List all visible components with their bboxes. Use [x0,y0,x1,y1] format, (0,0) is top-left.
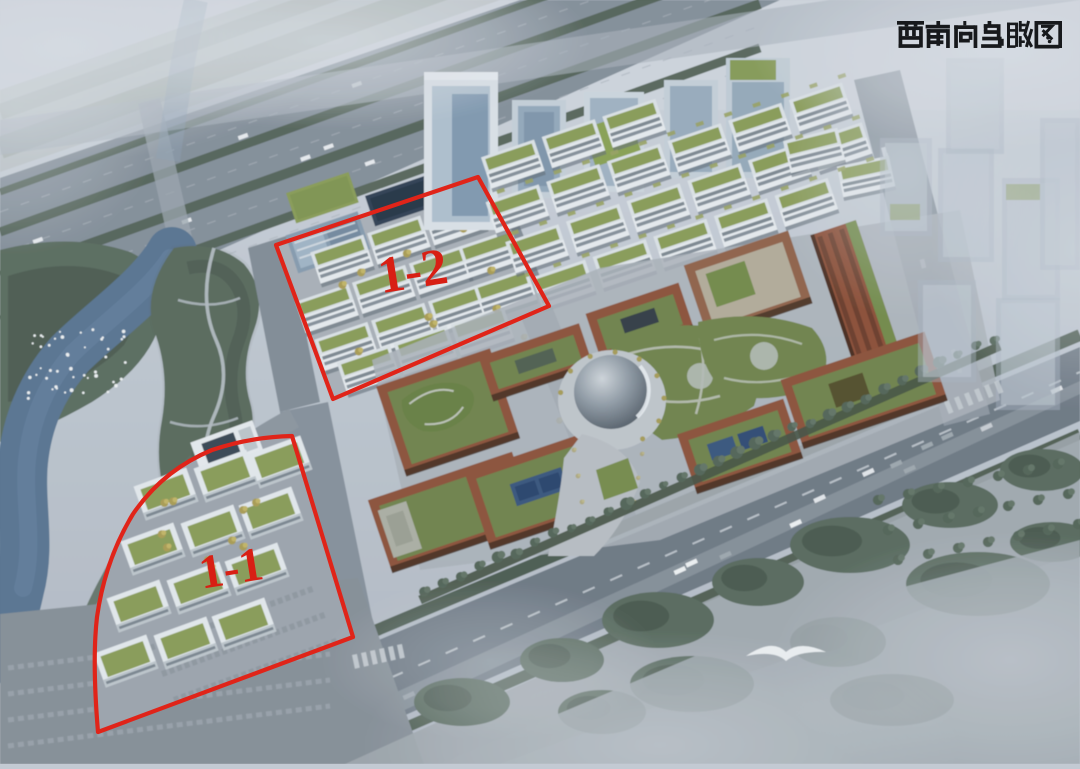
svg-text:1-1: 1-1 [195,537,266,599]
svg-text:1-2: 1-2 [374,238,451,305]
